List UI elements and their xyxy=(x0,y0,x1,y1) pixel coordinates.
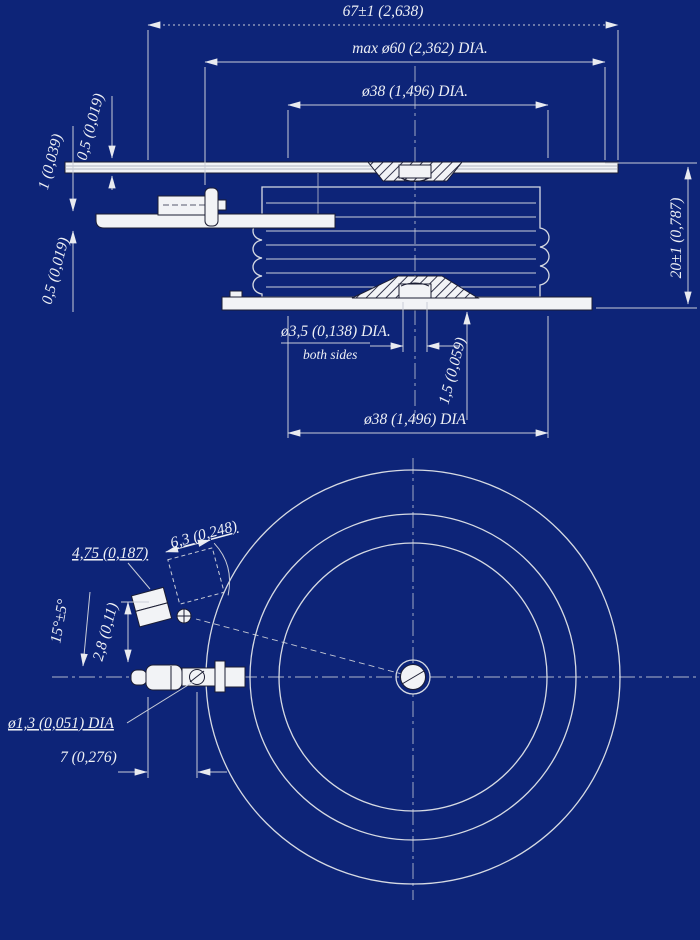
dim-pole-face-top-label: ø38 (1,496) DIA. xyxy=(361,83,468,100)
dim-top-lead-thickness-label: 0,5 (0,019) xyxy=(74,92,108,163)
dim-max-diameter-label: max ø60 (2,362) DIA. xyxy=(352,40,488,57)
dim-terminal-hole-position-label: 7 (0,276) xyxy=(60,749,117,766)
gate-connector-barrel xyxy=(158,196,210,215)
dim-gate-lead-thickness-label: 1 (0,039) xyxy=(35,132,66,191)
gate-terminal-block xyxy=(131,587,171,626)
dim-top-lead-thickness: 0,5 (0,019) xyxy=(74,92,112,190)
note-recess-both-sides: both sides xyxy=(303,347,357,362)
dim-center-recess: ø3,5 (0,138) DIA. both sides xyxy=(280,302,460,362)
top-center-recess xyxy=(399,165,431,178)
dim-recess-depth: 1,5 (0,059) xyxy=(436,312,470,420)
bottom-center-recess xyxy=(399,284,431,298)
dim-pole-face-top: ø38 (1,496) DIA. xyxy=(288,83,548,158)
dim-terminal-pad-leader xyxy=(214,541,235,595)
side-section-view: 67±1 (2,638) max ø60 (2,362) DIA. ø38 (1… xyxy=(35,3,697,438)
aux-terminal-flange xyxy=(215,661,225,692)
dim-aux-lead-thickness-label: 0,5 (0,019) xyxy=(39,236,73,307)
dim-terminal-pad-label: 6,3 (0,248) xyxy=(169,518,240,552)
dim-aux-lead-thickness: 0,5 (0,019) xyxy=(39,231,73,312)
dim-overall-width-label: 67±1 (2,638) xyxy=(343,3,424,20)
bottom-pole-lead-plate xyxy=(222,297,592,310)
dim-center-recess-label: ø3,5 (0,138) DIA. xyxy=(280,323,391,340)
aux-terminal-barrel xyxy=(146,665,182,690)
dim-terminal-hole-diameter-label: ø1,3 (0,051) DIA xyxy=(7,715,114,732)
dim-terminal-width-label: 4,75 (0,187) xyxy=(72,545,148,562)
dim-pole-face-bottom-label: ø38 (1,496) DIA xyxy=(363,411,467,428)
dim-terminal-angle-label: 15°±5° xyxy=(47,598,71,644)
bottom-plan-view: 6,3 (0,248) 4,75 (0,187) 15°±5° 2,8 (0,1… xyxy=(7,458,696,900)
dim-terminal-hole-position: 7 (0,276) xyxy=(60,692,227,778)
gate-connector-flange xyxy=(205,188,218,226)
technical-drawing-page: 67±1 (2,638) max ø60 (2,362) DIA. ø38 (1… xyxy=(0,0,700,940)
aux-terminal-cap xyxy=(131,670,147,685)
top-pole-lead-plate xyxy=(65,162,618,173)
dim-terminal-offset-label: 2,8 (0,11) xyxy=(90,601,122,663)
aux-terminal-end xyxy=(225,667,245,687)
dim-terminal-width: 4,75 (0,187) xyxy=(72,545,150,589)
aux-terminal xyxy=(131,661,245,692)
dim-height-label: 20±1 (0,787) xyxy=(668,198,685,279)
dim-height: 20±1 (0,787) xyxy=(596,163,697,308)
thyristor-disc-drawing: 67±1 (2,638) max ø60 (2,362) DIA. ø38 (1… xyxy=(0,0,700,940)
terminal-pad-dashed-square xyxy=(168,548,224,604)
dim-terminal-angle: 15°±5° xyxy=(47,592,90,666)
